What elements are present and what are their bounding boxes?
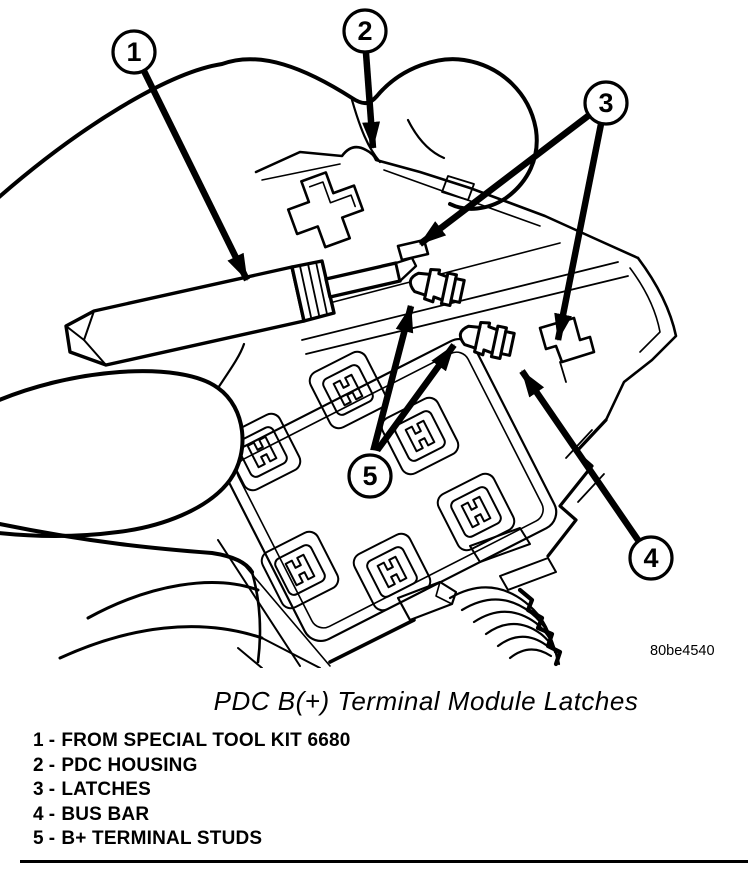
legend-item-5: 5-B+ TERMINAL STUDS xyxy=(33,827,351,852)
legend-item-label: LATCHES xyxy=(61,779,151,800)
latch-cross-boss xyxy=(281,165,371,255)
wire-loom-illustration xyxy=(330,582,560,664)
bottom-divider xyxy=(20,860,748,863)
callout-1-number: 1 xyxy=(126,37,141,67)
legend-item-number: 3 xyxy=(33,779,44,800)
callout-3-number: 3 xyxy=(598,88,613,118)
callout-legend: 1-FROM SPECIAL TOOL KIT 6680 2-PDC HOUSI… xyxy=(33,729,351,852)
callout-1-arrow xyxy=(144,71,247,280)
legend-item-label: B+ TERMINAL STUDS xyxy=(61,828,262,849)
legend-item-label: FROM SPECIAL TOOL KIT 6680 xyxy=(61,730,350,751)
figure-code: 80be4540 xyxy=(650,643,715,659)
manual-figure-page: 1 2 3 4 5 80be4540 PDC B(+) Terminal xyxy=(0,0,752,878)
legend-item-3: 3-LATCHES xyxy=(33,778,351,803)
callout-2-balloon: 2 xyxy=(344,10,386,52)
legend-item-separator: - xyxy=(49,779,56,800)
bus-bar-illustration xyxy=(470,420,606,590)
legend-item-number: 4 xyxy=(33,804,44,825)
callout-3-balloon: 3 xyxy=(585,82,627,124)
b-plus-terminal-studs xyxy=(407,265,515,361)
callout-4-arrow xyxy=(522,371,638,540)
latch-right xyxy=(540,318,594,382)
legend-item-separator: - xyxy=(49,804,56,825)
legend-item-number: 1 xyxy=(33,730,44,751)
legend-item-2: 2-PDC HOUSING xyxy=(33,754,351,779)
legend-item-1: 1-FROM SPECIAL TOOL KIT 6680 xyxy=(33,729,351,754)
legend-item-4: 4-BUS BAR xyxy=(33,803,351,828)
legend-item-number: 2 xyxy=(33,755,44,776)
callout-1-balloon: 1 xyxy=(113,31,155,73)
callout-4-balloon: 4 xyxy=(630,537,672,579)
legend-item-label: BUS BAR xyxy=(61,804,149,825)
callout-5-number: 5 xyxy=(362,461,377,491)
legend-item-number: 5 xyxy=(33,828,44,849)
figure-caption: PDC B(+) Terminal Module Latches xyxy=(0,686,752,717)
callout-4-number: 4 xyxy=(643,543,658,573)
legend-item-separator: - xyxy=(49,755,56,776)
callout-2-number: 2 xyxy=(357,16,372,46)
callout-5-balloon: 5 xyxy=(344,450,396,502)
legend-item-label: PDC HOUSING xyxy=(61,755,197,776)
legend-item-separator: - xyxy=(49,828,56,849)
callout-3-arrow-right xyxy=(558,124,601,340)
legend-item-separator: - xyxy=(49,730,56,751)
pdc-latch-illustration: 1 2 3 4 5 80be4540 xyxy=(0,0,752,668)
